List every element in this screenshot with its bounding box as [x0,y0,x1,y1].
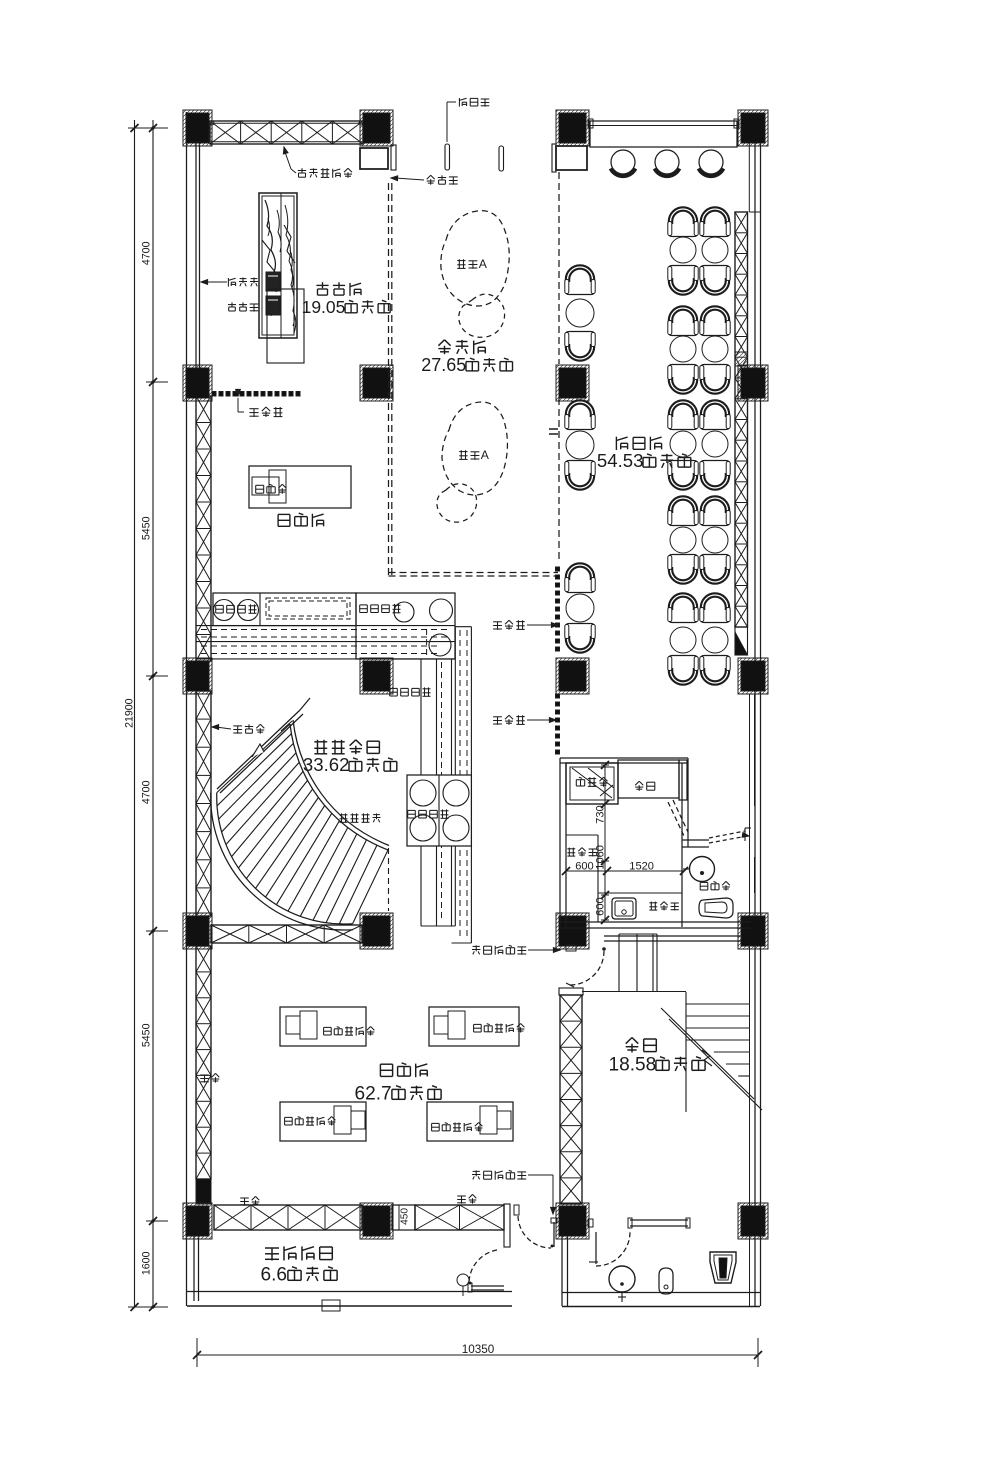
svg-text:1060: 1060 [595,845,607,870]
svg-text:19.05: 19.05 [302,297,346,317]
svg-text:4700: 4700 [141,241,153,265]
svg-text:10350: 10350 [462,1343,495,1356]
svg-text:600: 600 [575,861,594,873]
svg-text:A: A [481,448,490,462]
svg-text:6.6: 6.6 [261,1264,288,1285]
svg-text:33.62: 33.62 [303,754,350,775]
svg-text:730: 730 [595,805,607,824]
svg-text:450: 450 [399,1208,410,1225]
svg-text:27.65: 27.65 [421,355,466,375]
svg-text:5450: 5450 [141,516,153,540]
svg-text:1600: 1600 [141,1251,153,1275]
svg-text:62.7: 62.7 [355,1083,392,1104]
svg-text:A: A [479,257,488,271]
svg-text:1520: 1520 [629,861,654,873]
svg-text:4700: 4700 [141,780,153,804]
svg-text:21900: 21900 [124,698,136,728]
svg-text:18.58: 18.58 [609,1054,657,1075]
svg-text:600: 600 [595,897,607,916]
svg-text:54.53: 54.53 [597,450,644,471]
svg-text:5450: 5450 [141,1023,153,1047]
